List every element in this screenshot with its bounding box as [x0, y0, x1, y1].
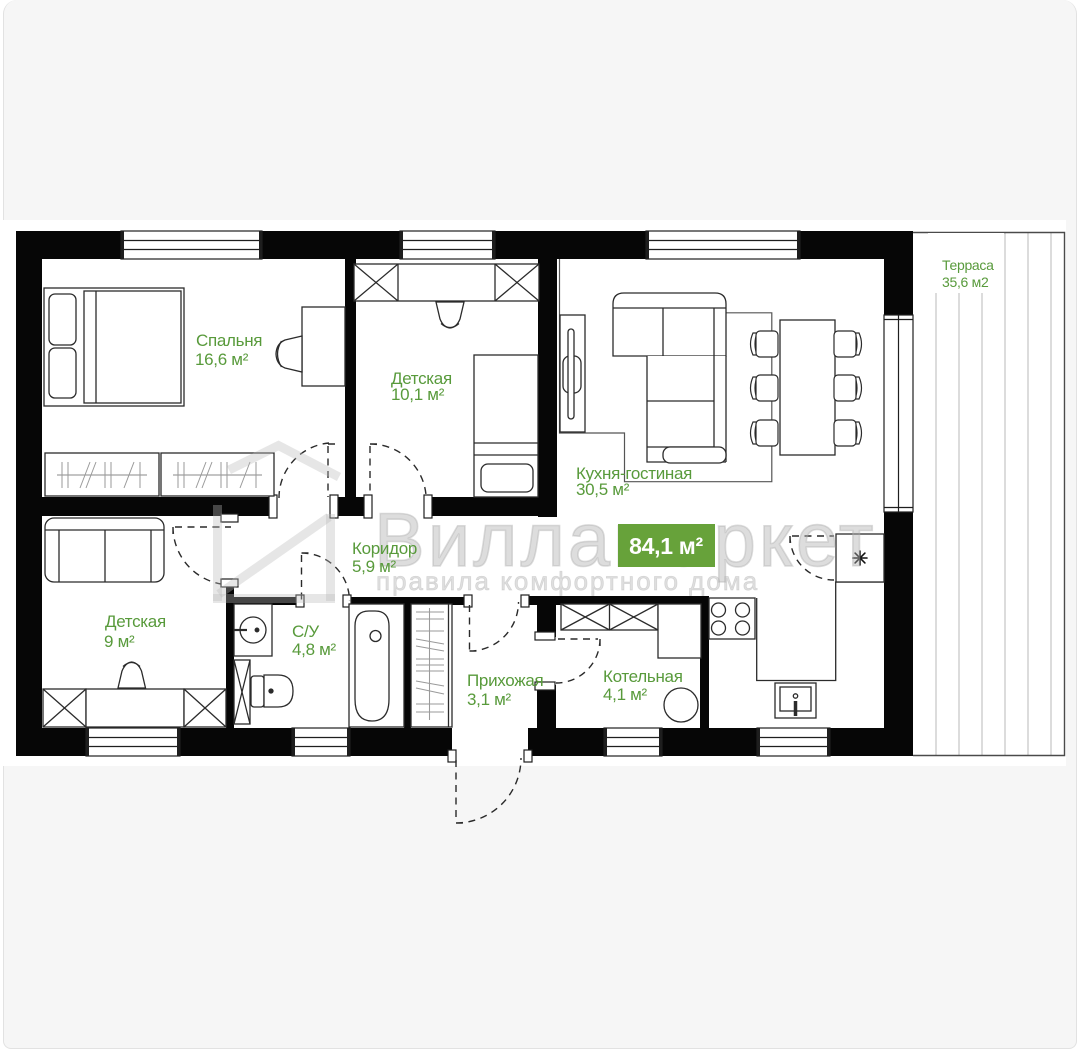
svg-text:правила комфортного дома: правила комфортного дома: [376, 566, 759, 596]
svg-text:10,1 м²: 10,1 м²: [391, 385, 445, 404]
svg-text:9 м²: 9 м²: [104, 632, 135, 651]
svg-text:35,6 м2: 35,6 м2: [942, 274, 989, 290]
svg-text:4,8 м²: 4,8 м²: [292, 640, 337, 659]
svg-text:Прихожая: Прихожая: [467, 671, 543, 690]
svg-text:4,1 м²: 4,1 м²: [603, 685, 648, 704]
svg-text:84,1 м²: 84,1 м²: [629, 533, 703, 559]
svg-text:Терраса: Терраса: [942, 257, 994, 273]
svg-text:Котельная: Котельная: [603, 667, 683, 686]
svg-text:3,1 м²: 3,1 м²: [467, 690, 512, 709]
svg-text:16,6 м²: 16,6 м²: [195, 350, 249, 369]
svg-text:С/У: С/У: [292, 622, 319, 641]
svg-text:Коридор: Коридор: [352, 539, 417, 558]
svg-text:Спальня: Спальня: [196, 331, 262, 350]
svg-text:Детская: Детская: [105, 612, 166, 631]
svg-text:30,5 м²: 30,5 м²: [576, 480, 630, 499]
svg-text:5,9 м²: 5,9 м²: [352, 557, 397, 576]
